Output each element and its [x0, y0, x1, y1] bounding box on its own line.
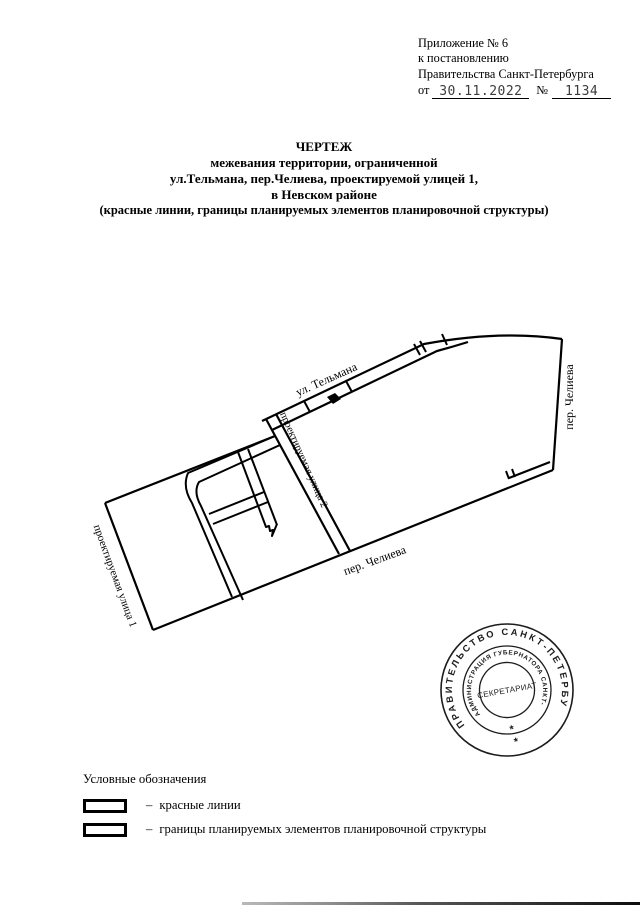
official-stamp: ПРАВИТЕЛЬСТВО САНКТ-ПЕТЕРБУРГА АДМИНИСТР… [431, 614, 584, 767]
legend-item-red-lines: –красные линии [83, 798, 486, 813]
corner-tick-1 [506, 471, 509, 479]
legend-item-label: границы планируемых элементов планировоч… [159, 822, 486, 836]
legend-title: Условные обозначения [83, 772, 486, 787]
boundary-right-edge [553, 339, 562, 470]
stamp-inner-ring-text: АДМИНИСТРАЦИЯ ГУБЕРНАТОРА САНКТ-ПЕТЕРБУР… [460, 643, 552, 720]
telmana-tick-2 [346, 381, 352, 392]
red-lines-swatch [83, 799, 127, 813]
stamp-star-icon: * [509, 723, 516, 736]
street2-left-line [266, 419, 339, 554]
legend-item-label: красные линии [159, 798, 240, 812]
stamp-star-icon: * [513, 736, 520, 749]
internal-branch-upper-line [209, 492, 264, 514]
stamp-center-text: СЕКРЕТАРИАТ [477, 681, 538, 700]
internal-cross-street-right [248, 449, 277, 525]
stamp-outer-ring-text: ПРАВИТЕЛЬСТВО САНКТ-ПЕТЕРБУРГА [434, 617, 575, 732]
legend-item-planning-borders: –границы планируемых элементов планирово… [83, 822, 486, 837]
legend-dash: – [146, 822, 152, 836]
survey-drawing: ул. Тельмана пер. Челиева пер. Челиева п… [0, 0, 640, 905]
label-chelieva-right: пер. Челиева [562, 364, 576, 430]
legend-dash: – [146, 798, 152, 812]
label-street2: проектируемая улица 2 [277, 410, 329, 509]
telmana-tick-1 [304, 401, 310, 412]
label-chelieva-bottom: пер. Челиева [341, 542, 408, 578]
document-page: Приложение № 6 к постановлению Правитель… [0, 0, 640, 905]
internal-street-inner-curve [196, 445, 280, 600]
legend: Условные обозначения –красные линии –гра… [83, 772, 486, 846]
planning-borders-swatch [83, 823, 127, 837]
